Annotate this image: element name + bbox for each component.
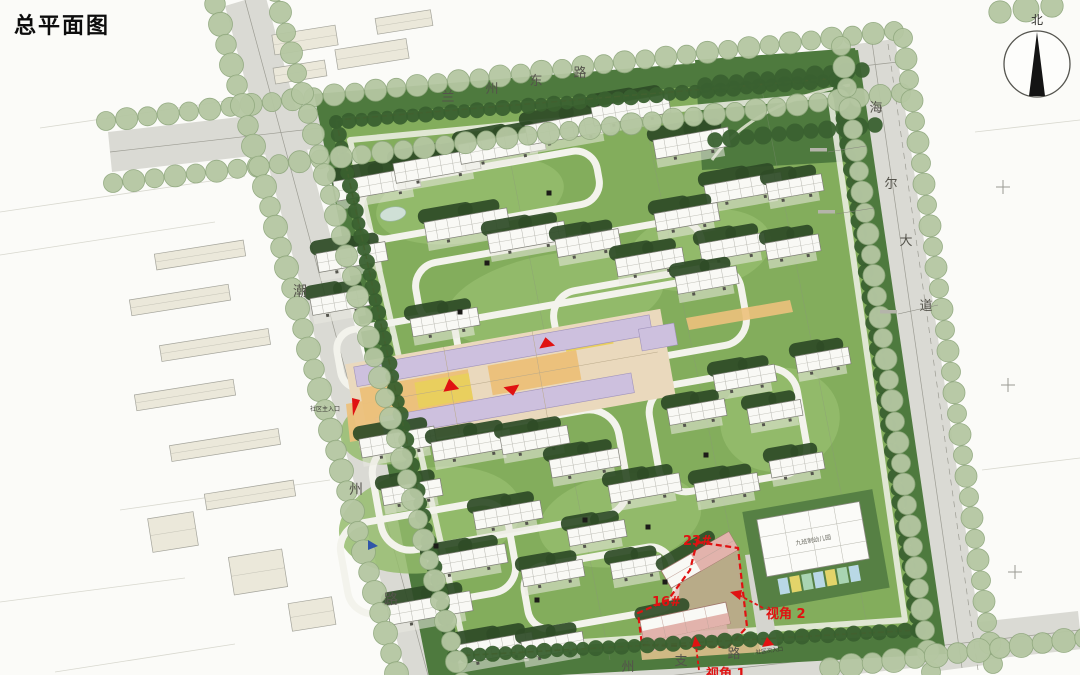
road-label-char: 路 [727, 646, 740, 662]
street-tree [363, 581, 387, 605]
street-tree [365, 348, 384, 367]
perimeter-tree [536, 643, 552, 659]
street-tree [907, 131, 929, 153]
street-tree [206, 160, 228, 182]
street-tree [942, 362, 961, 381]
perimeter-tree [443, 104, 459, 120]
street-tree [319, 418, 343, 442]
street-tree [906, 112, 925, 131]
perimeter-tree [808, 629, 822, 643]
street-tree [913, 173, 935, 195]
street-tree [216, 34, 237, 55]
perimeter-tree [560, 96, 574, 110]
street-tree [269, 155, 288, 174]
street-tree [325, 204, 347, 226]
road-label-char: 兰 [441, 90, 454, 105]
street-tree [343, 267, 362, 286]
street-tree [145, 169, 164, 188]
park-tree [806, 66, 824, 84]
street-tree [972, 571, 991, 590]
street-tree [228, 159, 247, 178]
street-tree [863, 265, 885, 287]
street-tree [424, 570, 446, 592]
street-tree [919, 215, 941, 237]
street-tree [518, 126, 537, 145]
street-tree [820, 658, 841, 675]
street-tree [359, 562, 380, 583]
perimeter-tree [794, 629, 810, 645]
street-tree [1032, 633, 1053, 654]
perimeter-tree [432, 107, 446, 121]
park-tree [771, 126, 786, 141]
park-tree [792, 68, 807, 83]
street-tree [348, 521, 369, 542]
perimeter-tree [562, 642, 578, 658]
street-tree [868, 287, 887, 306]
street-tree [435, 136, 454, 155]
street-tree [553, 59, 572, 78]
street-tree [636, 50, 655, 69]
street-tree [455, 132, 477, 154]
perimeter-tree [355, 113, 369, 127]
street-tree [326, 440, 347, 461]
perimeter-tree [359, 254, 375, 270]
street-tree [703, 103, 725, 125]
street-tree [238, 116, 259, 137]
existing-building [148, 512, 199, 553]
street-tree [767, 98, 786, 117]
perimeter-tree [418, 107, 434, 123]
perimeter-tree [885, 625, 899, 639]
street-tree [839, 98, 861, 120]
perimeter-tree [834, 627, 848, 641]
perimeter-tree [860, 626, 874, 640]
street-tree [931, 298, 953, 320]
street-tree [123, 170, 145, 192]
park-tree [707, 132, 722, 147]
street-tree [336, 245, 358, 267]
street-tree [882, 649, 906, 673]
street-tree [893, 473, 915, 495]
street-tree [845, 139, 867, 161]
park-tree [760, 71, 775, 86]
street-tree [372, 141, 394, 163]
street-tree [874, 329, 893, 348]
street-tree [431, 591, 450, 610]
street-tree [655, 46, 677, 68]
street-tree [839, 654, 863, 675]
street-tree [164, 165, 186, 187]
street-tree [886, 412, 905, 431]
marker-dot [704, 453, 709, 458]
street-tree [538, 122, 560, 144]
perimeter-tree [499, 646, 513, 660]
perimeter-tree [782, 630, 796, 644]
street-tree [601, 117, 620, 136]
street-tree [862, 653, 883, 674]
street-tree [304, 359, 325, 380]
perimeter-tree [731, 633, 745, 647]
street-tree [275, 256, 299, 280]
street-tree [413, 137, 435, 159]
street-tree [937, 340, 959, 362]
street-tree [954, 446, 973, 465]
street-tree [943, 382, 965, 404]
street-tree [802, 31, 821, 50]
street-tree [892, 454, 911, 473]
street-tree [990, 638, 1011, 659]
perimeter-tree [550, 643, 564, 657]
perimeter-tree [897, 623, 913, 639]
marker-dot [434, 544, 439, 549]
park-tree [712, 75, 730, 93]
street-tree [620, 113, 642, 135]
street-tree [511, 64, 530, 83]
street-tree [420, 551, 439, 570]
street-tree [875, 348, 897, 370]
street-tree [297, 337, 321, 361]
perimeter-tree [469, 102, 485, 118]
marker-dot [535, 598, 540, 603]
street-tree [895, 48, 917, 70]
street-tree [186, 164, 205, 183]
perimeter-tree [473, 648, 487, 662]
street-tree [643, 112, 662, 131]
street-tree [936, 321, 955, 340]
park-tree [803, 123, 818, 138]
marker-dot [458, 310, 463, 315]
street-tree [358, 326, 380, 348]
perimeter-tree [614, 639, 630, 655]
perimeter-tree [649, 87, 665, 103]
street-tree [260, 197, 281, 218]
street-tree [684, 107, 703, 126]
marker-dot [583, 518, 588, 523]
street-tree [354, 307, 373, 326]
street-tree [899, 515, 921, 537]
street-tree [947, 643, 968, 664]
perimeter-tree [546, 96, 562, 112]
marker-dot [663, 580, 668, 585]
existing-building [228, 549, 287, 595]
road-label-char: 州 [621, 660, 634, 675]
road-label-char: 东 [529, 74, 542, 89]
street-tree [838, 78, 857, 97]
park-tree [867, 117, 882, 132]
street-tree [844, 120, 863, 139]
street-tree [856, 203, 875, 222]
street-tree [446, 651, 468, 673]
perimeter-tree [329, 115, 343, 129]
perimeter-tree [534, 98, 548, 112]
street-tree [832, 37, 851, 56]
street-tree [227, 75, 248, 96]
street-tree [966, 529, 985, 548]
street-tree [231, 94, 255, 118]
street-tree [387, 429, 406, 448]
perimeter-tree [665, 636, 681, 652]
label-building-23: 23# [683, 534, 712, 549]
road-label-char: 潮 [293, 284, 307, 300]
park-tree [743, 72, 761, 90]
marker-dot [646, 525, 651, 530]
street-tree [391, 448, 413, 470]
perimeter-tree [586, 94, 600, 108]
road-label-char: 支 [674, 654, 687, 669]
street-tree [308, 378, 332, 402]
perimeter-tree [623, 89, 639, 105]
perimeter-tree [348, 203, 364, 219]
street-tree [910, 579, 929, 598]
road-label-char: 海 [869, 101, 882, 116]
street-tree [330, 459, 354, 483]
road-label-char: 州 [485, 82, 498, 97]
perimeter-tree [628, 639, 642, 653]
perimeter-tree [820, 627, 836, 643]
perimeter-tree [611, 91, 625, 105]
north-label: 北 [1031, 13, 1043, 27]
street-tree [779, 32, 801, 54]
street-tree [949, 424, 971, 446]
street-tree [220, 53, 244, 77]
street-tree [955, 465, 977, 487]
perimeter-tree [524, 645, 538, 659]
street-tree [857, 223, 879, 245]
street-tree [374, 621, 398, 645]
street-tree [978, 613, 997, 632]
street-tree [719, 40, 738, 59]
park-tree [818, 121, 836, 139]
road-label-char: 尔 [884, 177, 897, 192]
street-tree [249, 156, 270, 177]
street-tree [292, 83, 314, 105]
street-tree [924, 644, 948, 668]
perimeter-tree [653, 638, 667, 652]
perimeter-tree [341, 113, 357, 129]
street-tree [869, 306, 891, 328]
perimeter-tree [846, 626, 862, 642]
street-tree [905, 557, 927, 579]
street-tree [862, 22, 884, 44]
street-tree [352, 145, 371, 164]
street-tree [786, 94, 808, 116]
masterplan-canvas: 总平面图 [0, 0, 1080, 675]
perimeter-tree [662, 87, 676, 101]
park-tree [722, 130, 740, 148]
marker-dot [547, 191, 552, 196]
road-label-char: 路 [573, 65, 586, 81]
street-tree [365, 79, 387, 101]
street-tree [104, 174, 123, 193]
street-tree [696, 41, 718, 63]
street-tree [989, 1, 1011, 23]
road-label-char: 路 [384, 592, 398, 608]
street-tree [270, 1, 292, 23]
street-tree [851, 181, 873, 203]
street-tree [288, 64, 307, 83]
street-tree [387, 78, 406, 97]
perimeter-tree [602, 640, 616, 654]
perimeter-tree [520, 98, 536, 114]
perimeter-tree [353, 228, 369, 244]
street-tree [157, 103, 179, 125]
street-tree [904, 537, 923, 556]
street-tree [760, 36, 779, 55]
street-tree [435, 610, 457, 632]
perimeter-tree [705, 635, 719, 649]
street-tree [321, 185, 340, 204]
park-tree [854, 62, 869, 77]
perimeter-tree [392, 109, 408, 125]
perimeter-tree [485, 646, 501, 662]
street-tree [833, 56, 855, 78]
road-label-char: 大 [899, 234, 912, 249]
perimeter-tree [406, 109, 420, 123]
perimeter-tree [871, 624, 887, 640]
street-tree [345, 83, 364, 102]
street-tree [594, 55, 613, 74]
perimeter-tree [509, 100, 523, 114]
road-label-char: 州 [349, 482, 363, 498]
street-tree [973, 590, 995, 612]
street-tree [930, 279, 949, 298]
street-tree [850, 162, 869, 181]
perimeter-tree [368, 293, 382, 307]
street-tree [406, 75, 428, 97]
perimeter-tree [495, 100, 511, 116]
street-tree [918, 195, 937, 214]
street-tree [925, 257, 947, 279]
marker-dot [485, 261, 490, 266]
street-tree [900, 70, 919, 89]
street-tree [809, 93, 828, 112]
street-tree [299, 104, 318, 123]
perimeter-tree [483, 102, 497, 116]
street-tree [887, 432, 909, 454]
label-viewpoint-1: 视角 1 [706, 666, 746, 675]
street-tree [310, 145, 329, 164]
street-tree [961, 507, 983, 529]
label-viewpoint-2: 视角 2 [766, 606, 806, 622]
perimeter-tree [346, 191, 360, 205]
street-tree [862, 245, 881, 264]
perimeter-tree [639, 637, 655, 653]
perimeter-tree [576, 642, 590, 656]
street-tree [277, 23, 296, 42]
street-tree [881, 390, 903, 412]
street-tree [916, 621, 935, 640]
street-tree [179, 102, 198, 121]
label-main-entrance: 社区主入口 [310, 405, 340, 413]
park-tree [729, 74, 744, 89]
street-tree [948, 404, 967, 423]
park-tree [697, 77, 712, 92]
perimeter-tree [637, 89, 651, 103]
street-tree [138, 107, 157, 126]
street-tree [281, 42, 303, 64]
street-tree [369, 367, 391, 389]
street-tree [253, 175, 277, 199]
perimeter-tree [352, 217, 366, 231]
street-tree [409, 510, 428, 529]
street-tree [376, 388, 395, 407]
street-tree [560, 121, 579, 140]
street-tree [960, 488, 979, 507]
street-tree [662, 108, 684, 130]
street-tree [677, 45, 696, 64]
park-tree [754, 127, 772, 145]
street-tree [402, 488, 424, 510]
perimeter-tree [742, 631, 758, 647]
street-tree [901, 90, 923, 112]
perimeter-tree [357, 242, 371, 256]
street-tree [380, 407, 402, 429]
street-tree [905, 648, 926, 669]
street-tree [398, 470, 417, 489]
perimeter-tree [674, 85, 690, 101]
site-plan-drawing: 九班制幼儿园 兰州东路海尔大道潮州路州支路 23# 16# [0, 0, 1080, 675]
label-building-16: 16# [652, 595, 681, 610]
street-tree [209, 12, 233, 36]
street-tree [613, 51, 635, 73]
perimeter-tree [380, 111, 394, 125]
street-tree [579, 118, 601, 140]
street-tree [199, 98, 221, 120]
street-tree [330, 146, 352, 168]
perimeter-tree [597, 91, 613, 107]
street-tree [332, 226, 351, 245]
street-tree [1009, 634, 1033, 658]
street-tree [448, 70, 470, 92]
park-tree [775, 69, 793, 87]
street-tree [894, 29, 913, 48]
street-tree [303, 123, 325, 145]
street-tree [289, 151, 311, 173]
street-tree [323, 84, 345, 106]
park-tree [786, 124, 804, 142]
park-tree [739, 129, 754, 144]
street-tree [271, 237, 292, 258]
street-tree [442, 632, 461, 651]
perimeter-tree [342, 178, 358, 194]
street-tree [347, 285, 369, 307]
perimeter-tree [457, 104, 471, 118]
street-tree [293, 318, 314, 339]
street-tree [242, 134, 266, 158]
street-tree [314, 164, 336, 186]
street-tree [1052, 629, 1076, 653]
street-tree [413, 529, 435, 551]
street-tree [286, 296, 310, 320]
street-tree [726, 102, 745, 121]
street-tree [912, 154, 931, 173]
street-tree [967, 549, 989, 571]
street-tree [381, 643, 402, 664]
street-tree [477, 131, 496, 150]
perimeter-tree [572, 94, 588, 110]
street-tree [116, 108, 138, 130]
street-tree [496, 127, 518, 149]
street-tree [880, 370, 899, 389]
street-tree [262, 93, 281, 112]
street-tree [745, 99, 767, 121]
street-tree [97, 112, 116, 131]
street-tree [911, 598, 933, 620]
street-tree [738, 37, 760, 59]
street-tree [898, 496, 917, 515]
street-tree [967, 639, 991, 663]
street-tree [264, 215, 288, 239]
